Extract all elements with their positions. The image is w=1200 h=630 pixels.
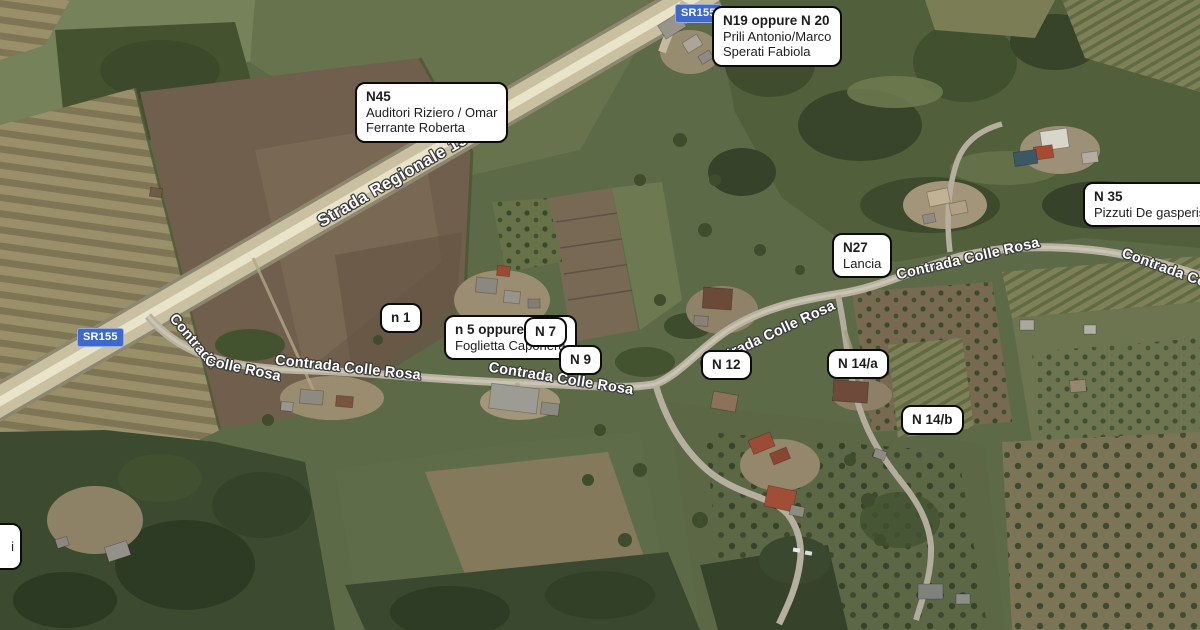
marker-n27[interactable]: N27 Lancia — [832, 233, 892, 278]
marker-n35[interactable]: N 35 Pizzuti De gasperis — [1083, 182, 1200, 227]
marker-n9[interactable]: N 9 — [559, 345, 602, 375]
marker-title: N 14/a — [838, 356, 878, 372]
route-shield-sr155-left: SR155 — [77, 328, 124, 347]
marker-line: i — [11, 539, 14, 555]
marker-title: N19 oppure N 20 — [723, 13, 831, 29]
marker-line: Sperati Fabiola — [723, 44, 831, 60]
marker-n12[interactable]: N 12 — [701, 350, 752, 380]
marker-n14a[interactable]: N 14/a — [827, 349, 889, 379]
marker-title: N 12 — [712, 357, 741, 373]
marker-title: N 14/b — [912, 412, 953, 428]
marker-title: N 9 — [570, 352, 591, 368]
marker-line: Pizzuti De gasperis — [1094, 205, 1200, 221]
marker-line: Auditori Riziero / Omar — [366, 105, 497, 121]
marker-line: Lancia — [843, 256, 881, 272]
marker-line: Prili Antonio/Marco — [723, 29, 831, 45]
marker-n19-n20[interactable]: N19 oppure N 20 Prili Antonio/Marco Sper… — [712, 6, 842, 67]
marker-n14b[interactable]: N 14/b — [901, 405, 964, 435]
marker-edge-partial[interactable]: i — [0, 523, 22, 570]
marker-n45[interactable]: N45 Auditori Riziero / Omar Ferrante Rob… — [355, 82, 508, 143]
marker-title: N45 — [366, 89, 497, 105]
marker-title: N 7 — [535, 324, 556, 340]
marker-n7[interactable]: N 7 — [524, 317, 567, 347]
map-viewport[interactable]: Strada Regionale 155 Contrada Colle Rosa… — [0, 0, 1200, 630]
marker-line: Ferrante Roberta — [366, 120, 497, 136]
marker-title: n 1 — [391, 310, 411, 326]
marker-n1[interactable]: n 1 — [380, 303, 422, 333]
marker-title: N27 — [843, 240, 881, 256]
marker-title: N 35 — [1094, 189, 1200, 205]
